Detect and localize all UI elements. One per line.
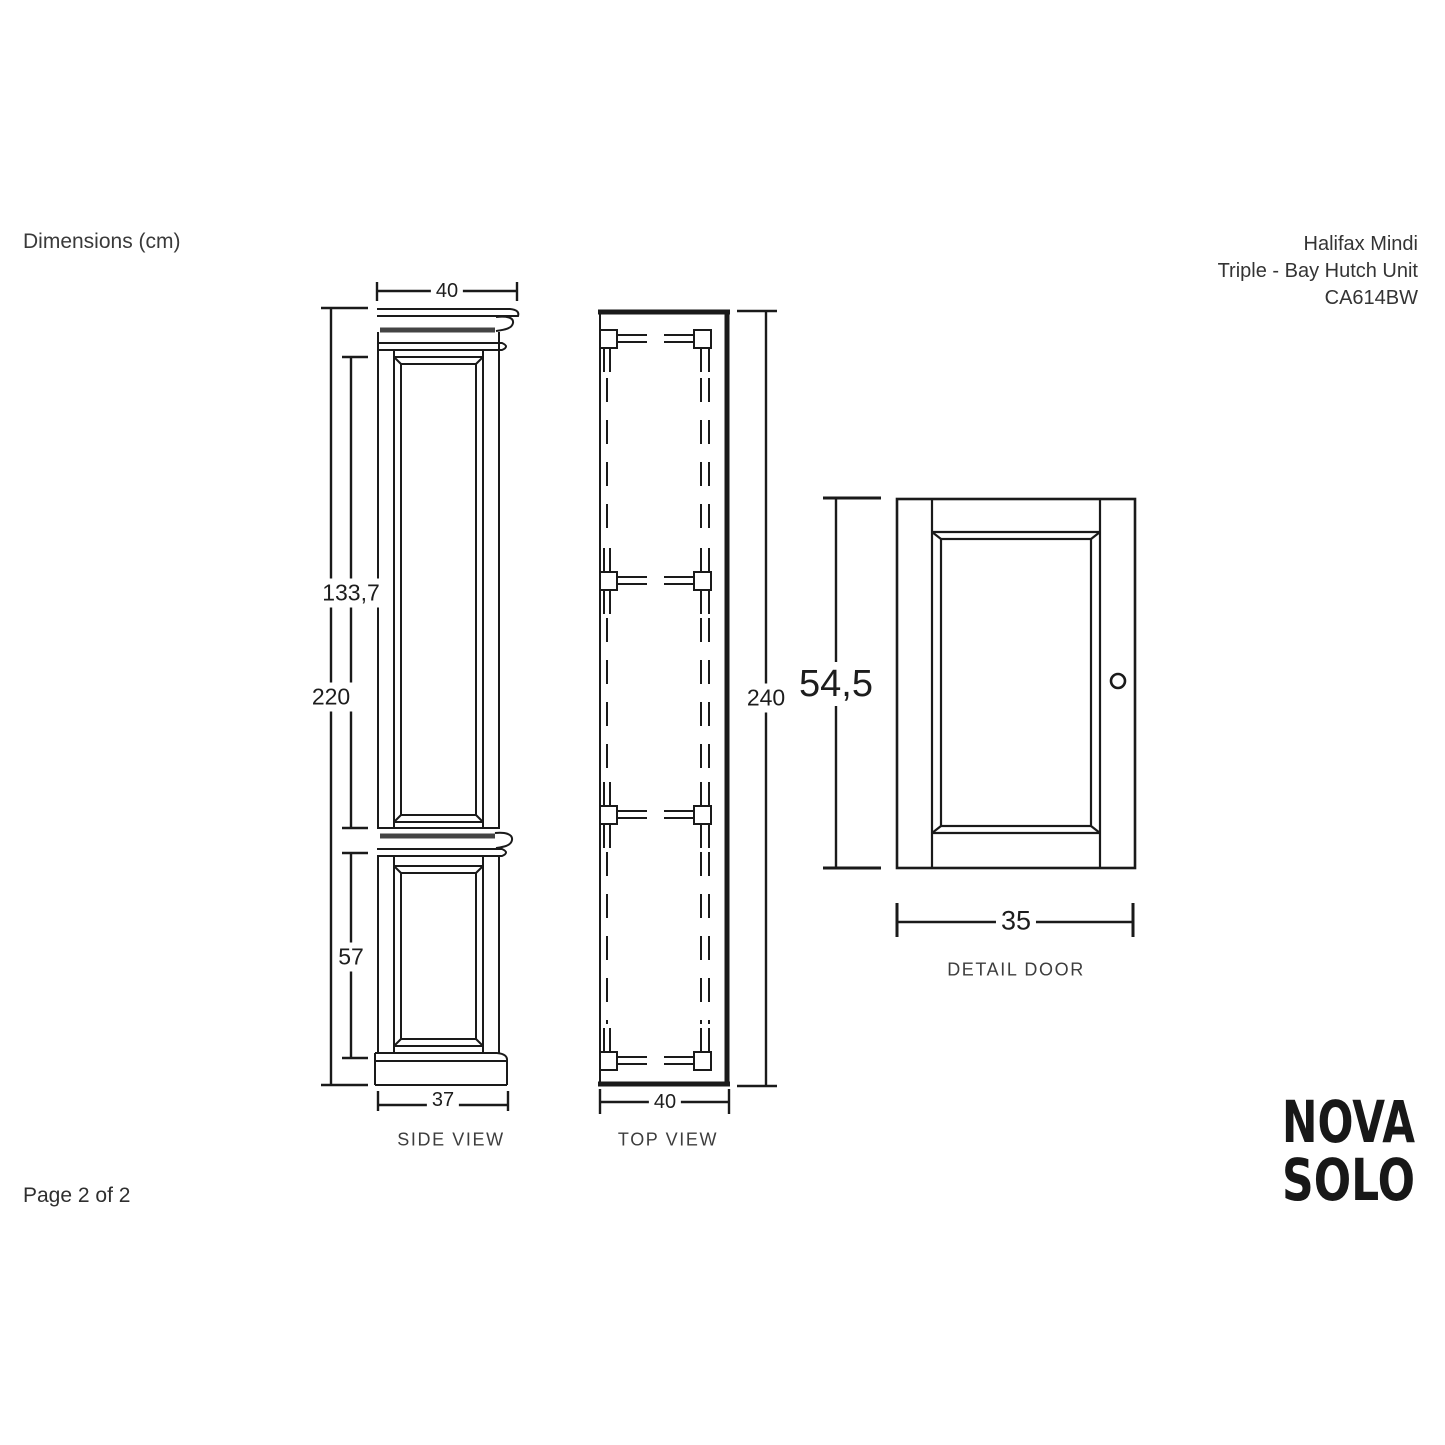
door-detail-label: DETAIL DOOR bbox=[947, 960, 1085, 981]
door-panel bbox=[932, 499, 1100, 868]
top-view-hidden-lines bbox=[607, 378, 709, 1024]
door-dimension-lines bbox=[823, 498, 1133, 937]
dim-top-view-width: 40 bbox=[649, 1092, 681, 1112]
side-view-label: SIDE VIEW bbox=[397, 1130, 504, 1151]
dim-door-height: 54,5 bbox=[795, 662, 877, 706]
door-detail-drawing bbox=[823, 498, 1135, 937]
page-number: Page 2 of 2 bbox=[23, 1184, 130, 1208]
dim-side-top-width: 40 bbox=[431, 281, 463, 301]
logo-line2: SOLO bbox=[1282, 1146, 1415, 1208]
top-view-frame-blocks bbox=[600, 330, 711, 1070]
spec-sheet-page: Dimensions (cm) Halifax Mindi Triple - B… bbox=[0, 0, 1445, 1445]
novasolo-logo: NOVA SOLO bbox=[1279, 1096, 1419, 1208]
dim-side-lower-section-height: 57 bbox=[334, 943, 368, 972]
top-view-dimension-lines bbox=[600, 311, 777, 1114]
door-knob-icon bbox=[1111, 674, 1125, 688]
dim-side-total-height: 220 bbox=[308, 683, 354, 712]
dim-side-bottom-width: 37 bbox=[427, 1090, 459, 1110]
dim-top-view-height: 240 bbox=[743, 684, 789, 713]
side-upper-body bbox=[377, 332, 500, 828]
dim-door-width: 35 bbox=[996, 908, 1036, 935]
side-plinth-base bbox=[375, 1053, 507, 1085]
side-middle-cornice bbox=[377, 833, 512, 856]
top-view-label: TOP VIEW bbox=[618, 1130, 718, 1151]
technical-drawing-canvas bbox=[0, 0, 1445, 1445]
top-view-outline bbox=[598, 310, 730, 1086]
side-lower-body bbox=[378, 856, 499, 1053]
side-top-cornice bbox=[377, 309, 518, 350]
dim-side-upper-section-height: 133,7 bbox=[318, 579, 384, 608]
